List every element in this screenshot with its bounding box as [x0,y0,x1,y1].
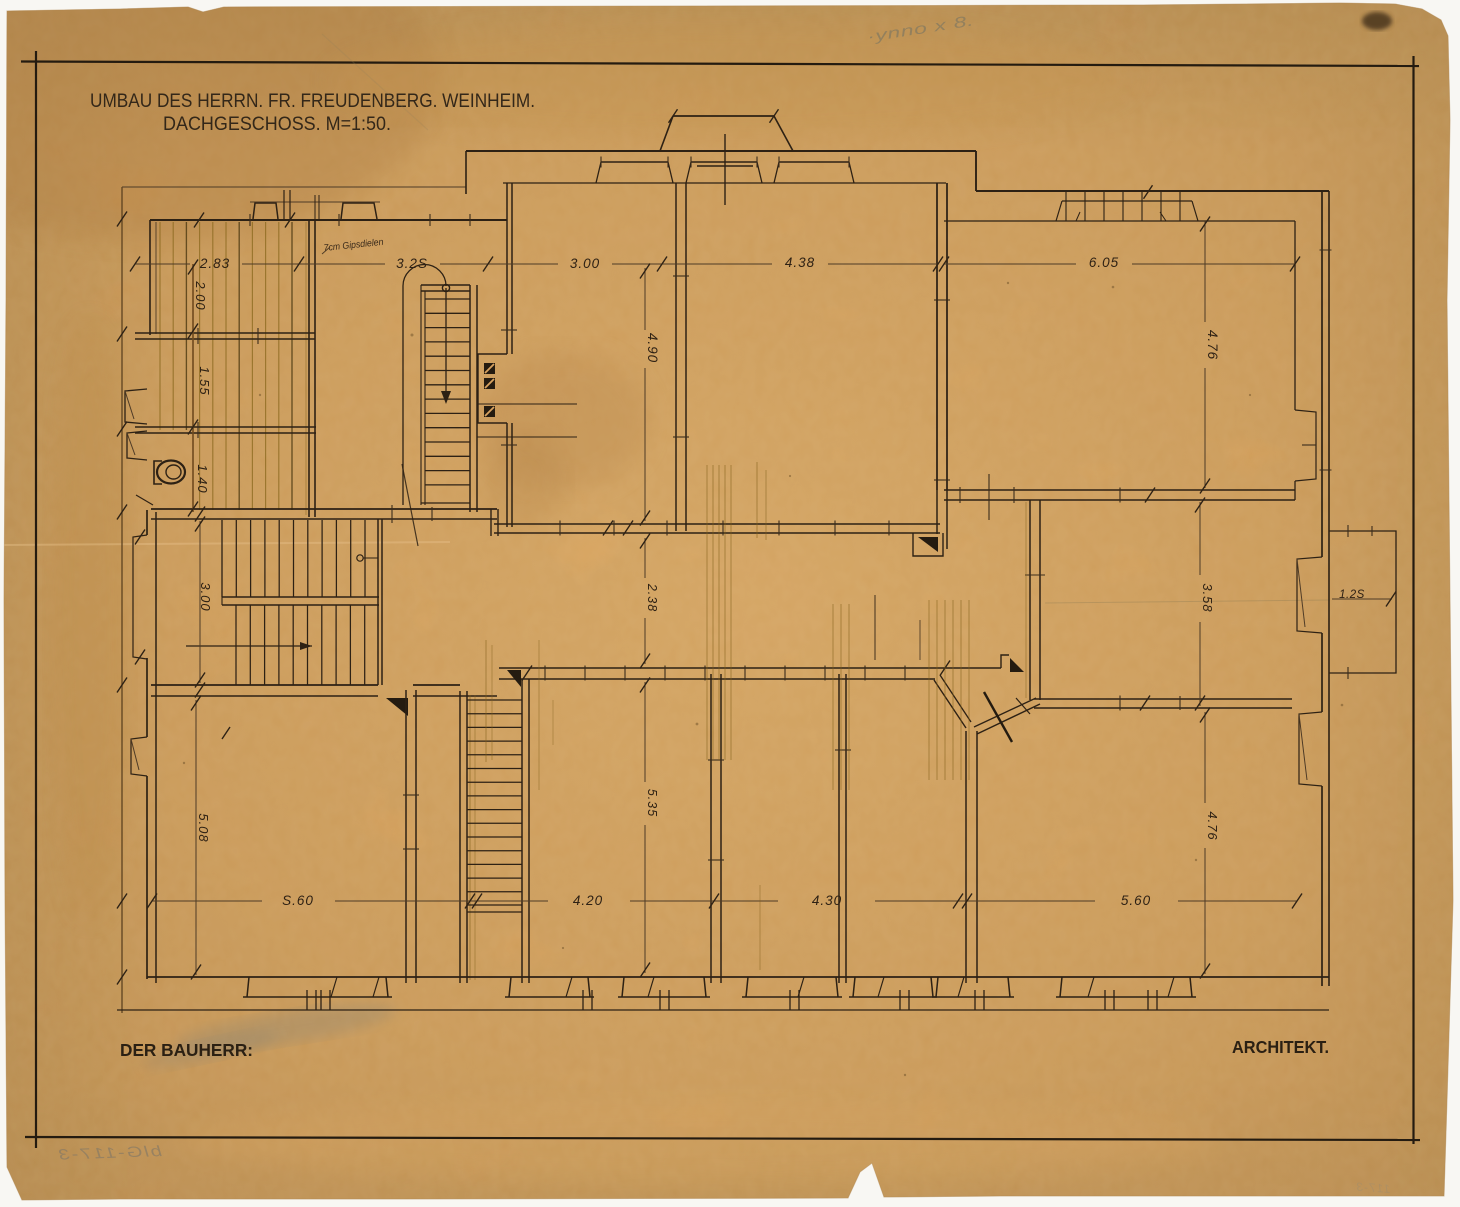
svg-text:DACHGESCHOSS. M=1:50.: DACHGESCHOSS. M=1:50. [163,113,391,135]
svg-text:2.83: 2.83 [199,256,230,271]
svg-text:2.00: 2.00 [193,280,208,310]
svg-text:3.00: 3.00 [198,582,213,611]
svg-text:4.20: 4.20 [573,893,603,908]
svg-text:4.76: 4.76 [1205,330,1220,360]
svg-text:DER BAUHERR:: DER BAUHERR: [120,1040,253,1060]
svg-text:1.55: 1.55 [197,366,212,395]
svg-text:117-3: 117-3 [1355,1180,1391,1196]
svg-text:UMBAU DES HERRN. FR. FREUDENBE: UMBAU DES HERRN. FR. FREUDENBERG. WEINHE… [90,90,535,112]
svg-text:5.60: 5.60 [1121,893,1151,908]
svg-text:3.00: 3.00 [570,256,600,271]
svg-text:ARCHITEKT.: ARCHITEKT. [1232,1037,1329,1057]
svg-text:4.76: 4.76 [1205,811,1220,840]
svg-text:S.60: S.60 [282,893,314,908]
svg-text:5.35: 5.35 [645,789,659,817]
svg-text:5.08: 5.08 [196,813,211,842]
svg-text:4.30: 4.30 [812,893,842,908]
svg-text:2.38: 2.38 [645,583,659,612]
svg-text:4.38: 4.38 [785,255,815,270]
svg-text:1.40: 1.40 [195,464,210,493]
svg-text:3.2S: 3.2S [396,256,428,271]
svg-text:1.2S: 1.2S [1339,589,1365,601]
svg-text:4.90: 4.90 [645,333,660,363]
svg-text:6.05: 6.05 [1089,255,1119,270]
svg-text:3.58: 3.58 [1200,583,1215,612]
